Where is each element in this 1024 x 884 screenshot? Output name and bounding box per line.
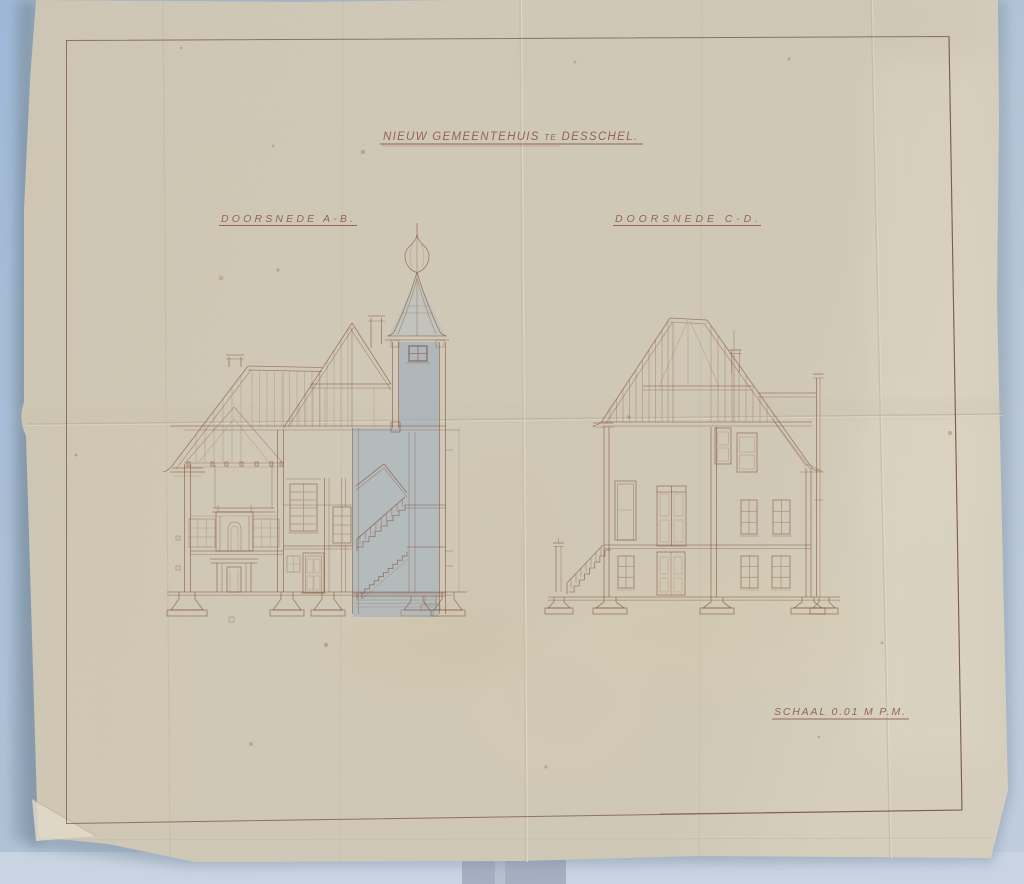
svg-text:SCHAAL 0.01 M P.M.: SCHAAL 0.01 M P.M. <box>774 706 907 718</box>
svg-text:DOORSNEDE A-B.: DOORSNEDE A-B. <box>221 213 355 225</box>
svg-text:NIEUW GEMEENTEHUIS TE DESSCHEL: NIEUW GEMEENTEHUIS TE DESSCHEL. <box>383 131 639 143</box>
